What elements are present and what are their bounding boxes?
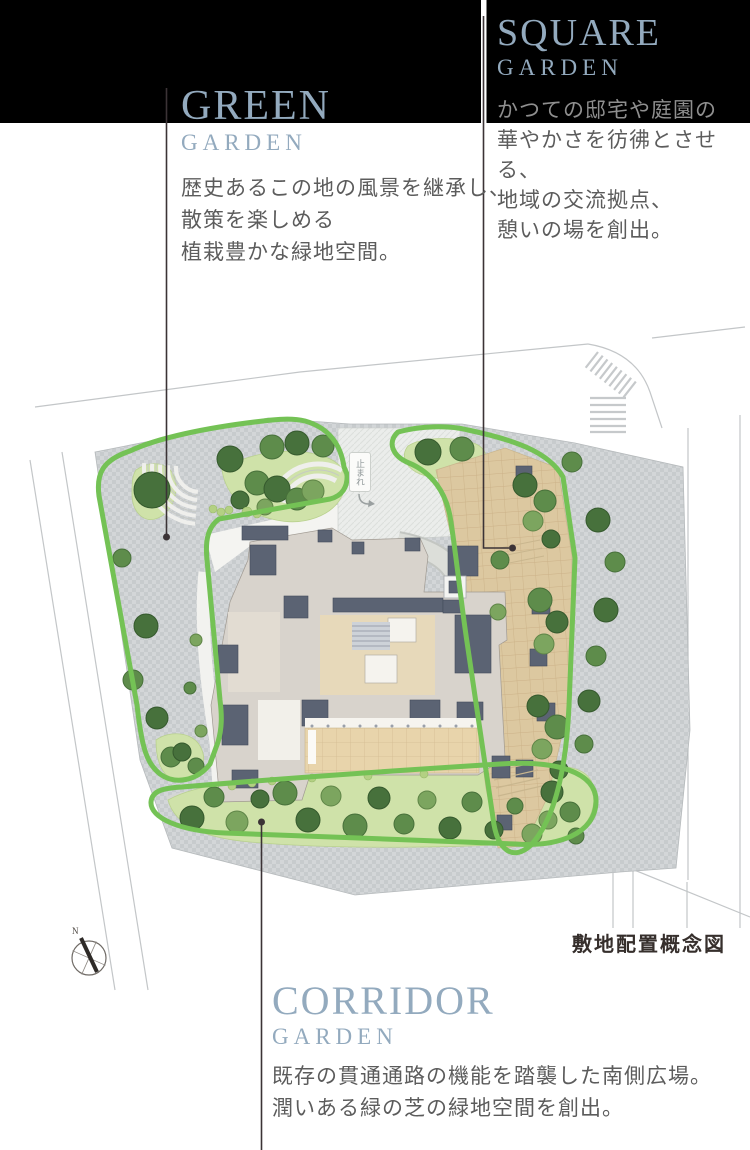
description-line: 華やかさを彷彿とさせる、 — [497, 125, 750, 185]
stop-road-marking: 止まれ — [349, 452, 371, 492]
description-line: 散策を楽しめる — [181, 204, 511, 236]
square-leader-dot — [509, 545, 516, 552]
corridor-garden-title: CORRIDOR — [272, 981, 712, 1021]
description-line: 潤いある緑の芝の緑地空間を創出。 — [272, 1092, 712, 1124]
crosswalk-east — [590, 398, 626, 432]
square-garden-title: SQUARE — [497, 14, 750, 52]
corridor-garden-description: 既存の貫通通路の機能を踏襲した南側広場。 潤いある緑の芝の緑地空間を創出。 — [272, 1060, 712, 1124]
building — [211, 526, 510, 802]
square-garden-subtitle: GARDEN — [497, 56, 750, 79]
green-garden-subtitle: GARDEN — [181, 131, 511, 154]
description-line: 憩いの場を創出。 — [497, 215, 750, 245]
green-garden-title: GREEN — [181, 85, 511, 127]
description-line: 植栽豊かな緑地空間。 — [181, 236, 511, 268]
square-garden-description: かつての邸宅や庭園の 華やかさを彷彿とさせる、 地域の交流拠点、 憩いの場を創出… — [497, 95, 750, 245]
compass-north-label: N — [72, 926, 79, 936]
green-leader-dot — [163, 534, 170, 541]
description-line: 既存の貫通通路の機能を踏襲した南側広場。 — [272, 1060, 712, 1092]
description-line: 地域の交流拠点、 — [497, 185, 750, 215]
map-caption: 敷地配置概念図 — [572, 928, 726, 957]
green-garden-description: 歴史あるこの地の風景を継承し、 散策を楽しめる 植栽豊かな緑地空間。 — [181, 172, 511, 268]
description-line: 歴史あるこの地の風景を継承し、 — [181, 172, 511, 204]
green-garden-label: GREEN GARDEN 歴史あるこの地の風景を継承し、 散策を楽しめる 植栽豊… — [181, 85, 511, 268]
page: N GREEN GARDEN 歴史あるこの地の風景を継承し、 散策を楽しめる 植… — [0, 0, 750, 1150]
corridor-leader-dot — [258, 819, 265, 826]
description-line: かつての邸宅や庭園の — [497, 95, 750, 125]
corridor-garden-label: CORRIDOR GARDEN 既存の貫通通路の機能を踏襲した南側広場。 潤いあ… — [272, 981, 712, 1124]
crosswalk-northeast — [586, 352, 636, 397]
corridor-garden-subtitle: GARDEN — [272, 1025, 712, 1048]
square-garden-label: SQUARE GARDEN かつての邸宅や庭園の 華やかさを彷彿とさせる、 地域… — [497, 14, 750, 245]
